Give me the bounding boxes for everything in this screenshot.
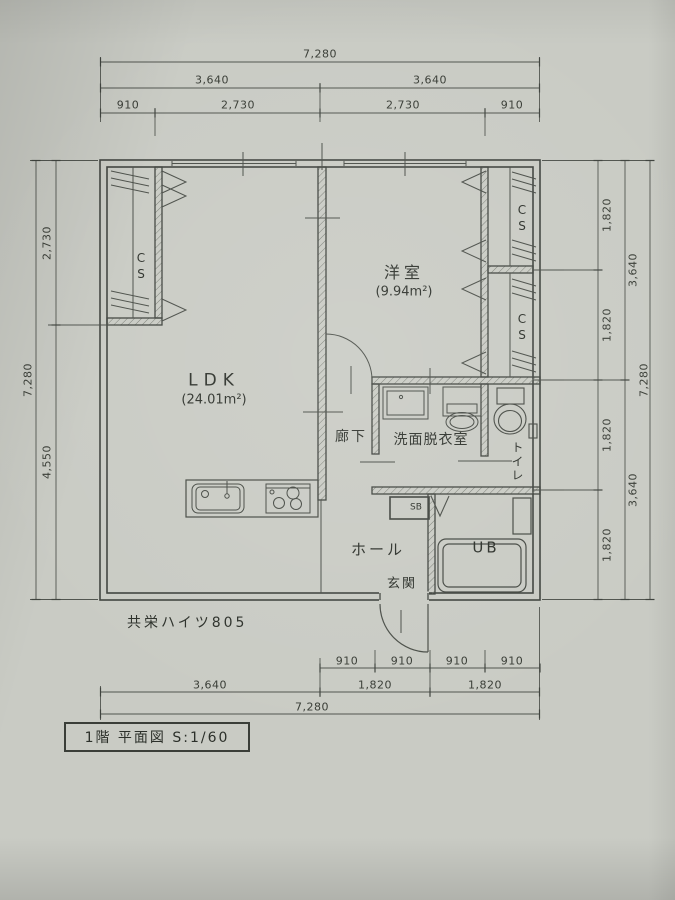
dim-right-half-1: 3,640	[628, 253, 639, 287]
room-label-hall: ホール	[351, 543, 405, 558]
interior-walls	[107, 167, 540, 594]
vanity-basin	[383, 387, 428, 419]
dimension-ticks	[32, 58, 655, 719]
title-block-text: 1階 平面図 S:1/60	[85, 727, 230, 747]
room-label-washroom: 洗面脱衣室	[394, 433, 469, 447]
washing-machine-pan	[443, 387, 481, 432]
kitchen-stove	[266, 484, 310, 513]
dim-top-half-1: 3,640	[195, 75, 229, 86]
dim-right-seg-3: 1,820	[602, 418, 613, 452]
dim-top-seg-3: 2,730	[386, 100, 420, 111]
room-area-ldk: (24.01m²)	[181, 394, 246, 407]
dim-right-seg-4: 1,820	[602, 528, 613, 562]
dim-bottom-mid-2: 1,820	[358, 680, 392, 691]
room-label-closet-right-bottom: CS	[516, 312, 528, 344]
room-label-toilet: トイレ	[511, 441, 523, 483]
room-label-unit-bath: UB	[472, 541, 499, 556]
room-label-ldk: LDK	[188, 373, 240, 390]
room-area-western-room: (9.94m²)	[376, 286, 433, 299]
dim-left-seg-1: 2,730	[42, 226, 53, 260]
room-label-western-room: 洋室	[384, 265, 424, 281]
entrance-door	[380, 604, 428, 652]
toilet-fixture	[494, 388, 537, 438]
dim-bottom-seg-2: 910	[391, 656, 414, 667]
dim-top-seg-1: 910	[117, 100, 140, 111]
dim-bottom-seg-1: 910	[336, 656, 359, 667]
dim-top-seg-4: 910	[501, 100, 524, 111]
dim-bottom-seg-3: 910	[446, 656, 469, 667]
dim-right-total: 7,280	[639, 363, 650, 397]
room-label-closet-left: CS	[135, 251, 147, 283]
building-name: 共栄ハイツ805	[127, 612, 247, 632]
room-label-entrance: 玄関	[387, 578, 417, 591]
room-label-closet-right-top: CS	[516, 203, 528, 235]
dim-left-total: 7,280	[23, 363, 34, 397]
room-label-corridor: 廊下	[335, 430, 367, 444]
dimension-lines	[30, 57, 653, 720]
western-room-door-arc	[326, 334, 372, 380]
plan-drawing	[0, 0, 675, 900]
dim-top-seg-2: 2,730	[221, 100, 255, 111]
dim-right-seg-2: 1,820	[602, 308, 613, 342]
dim-bottom-total: 7,280	[295, 702, 329, 713]
window-glazing	[172, 161, 466, 166]
paper-background: 7,280 3,640 3,640 910 2,730 2,730 910 7,…	[0, 0, 675, 900]
closet-left-marks	[111, 167, 186, 321]
kitchen-sink	[192, 481, 244, 513]
dim-right-half-2: 3,640	[628, 473, 639, 507]
dim-top-total: 7,280	[303, 49, 337, 60]
dim-left-seg-2: 4,550	[42, 445, 53, 479]
title-block: 1階 平面図 S:1/60	[64, 722, 250, 752]
dim-top-half-2: 3,640	[413, 75, 447, 86]
dim-bottom-seg-4: 910	[501, 656, 524, 667]
dim-bottom-mid-3: 1,820	[468, 680, 502, 691]
entrance-opening	[379, 592, 429, 602]
floor-plan-photo: { "colors": { "paper": "#c9cbc4", "line"…	[0, 0, 675, 900]
dim-bottom-mid-1: 3,640	[193, 680, 227, 691]
dim-right-seg-1: 1,820	[602, 198, 613, 232]
room-label-shoe-box: SB	[410, 504, 422, 513]
